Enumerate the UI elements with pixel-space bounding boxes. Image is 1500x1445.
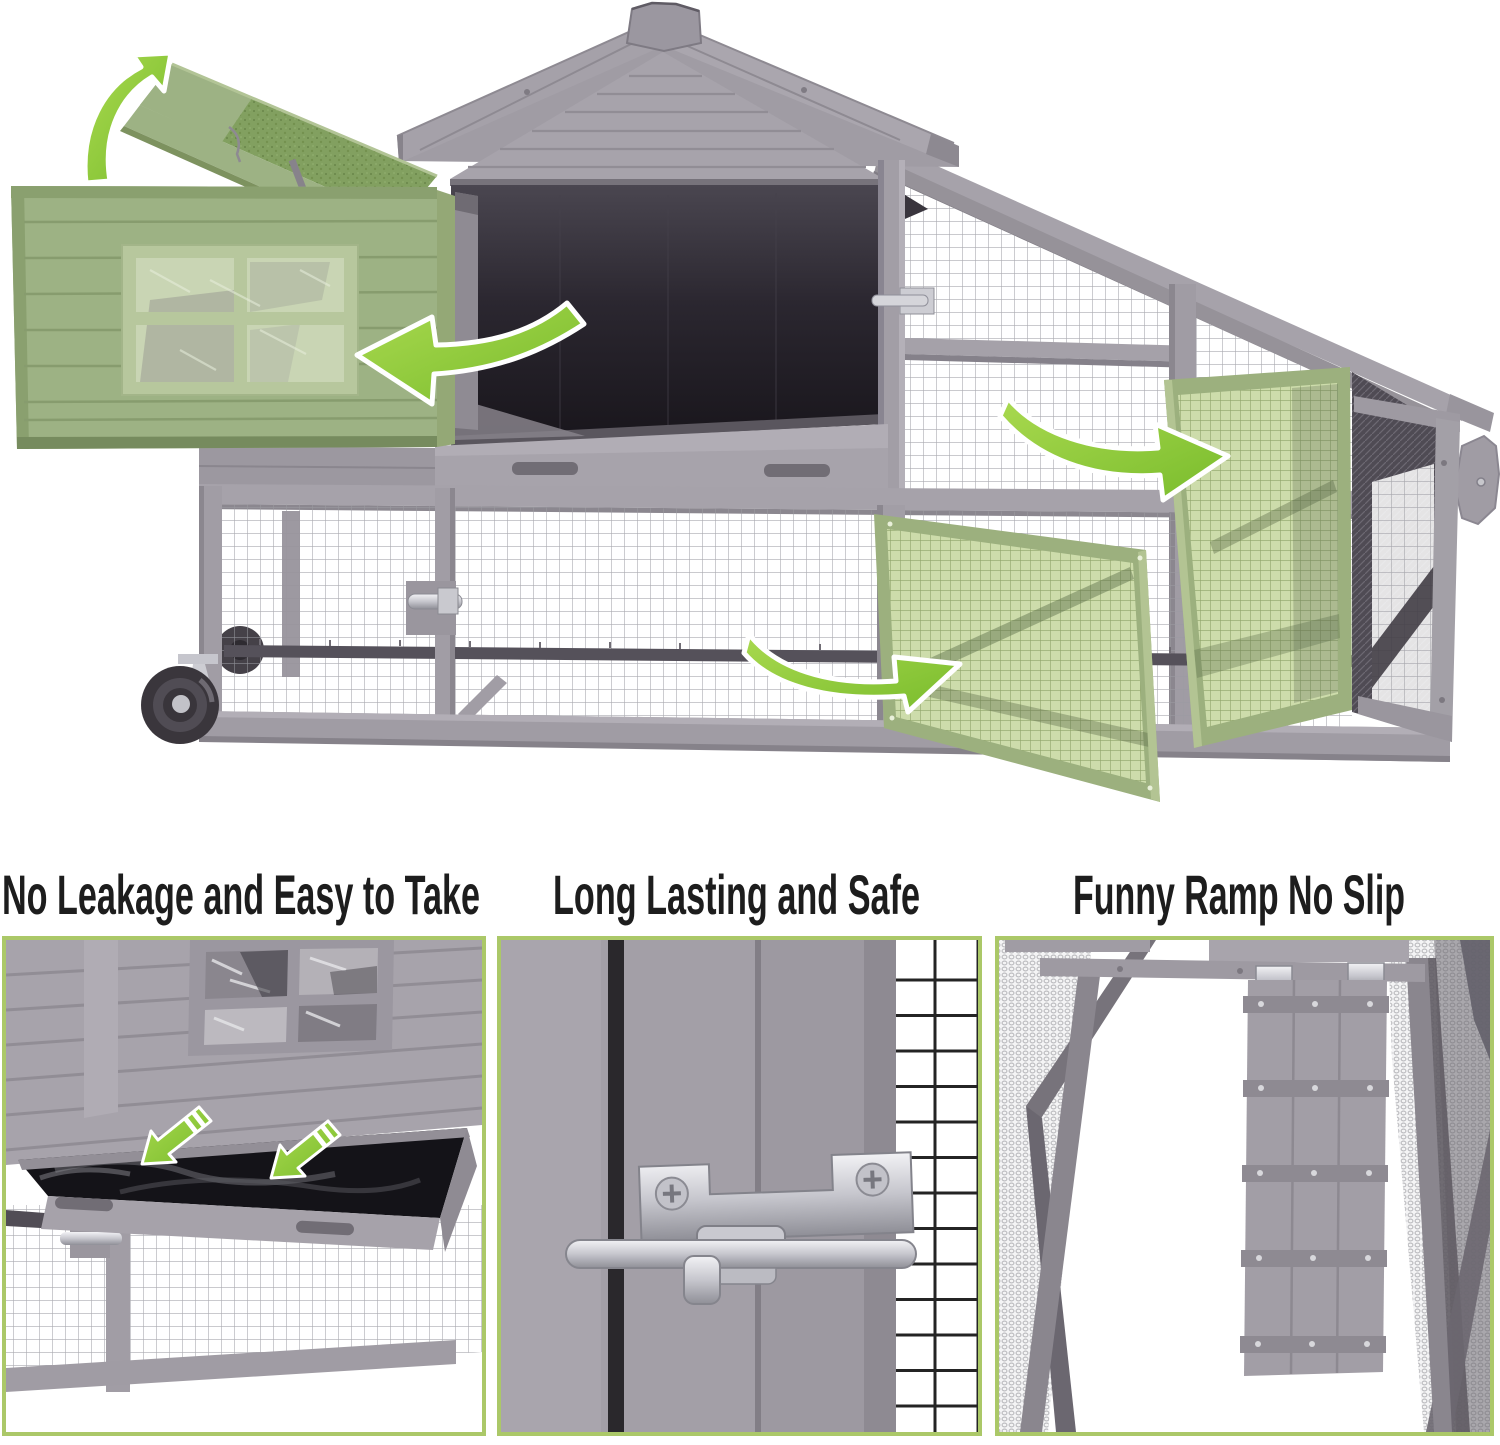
- svg-text:No Leakage and Easy to Take: No Leakage and Easy to Take: [2, 863, 480, 926]
- svg-text:Long Lasting and Safe: Long Lasting and Safe: [553, 863, 920, 926]
- svg-text:Funny Ramp No Slip: Funny Ramp No Slip: [1073, 863, 1405, 926]
